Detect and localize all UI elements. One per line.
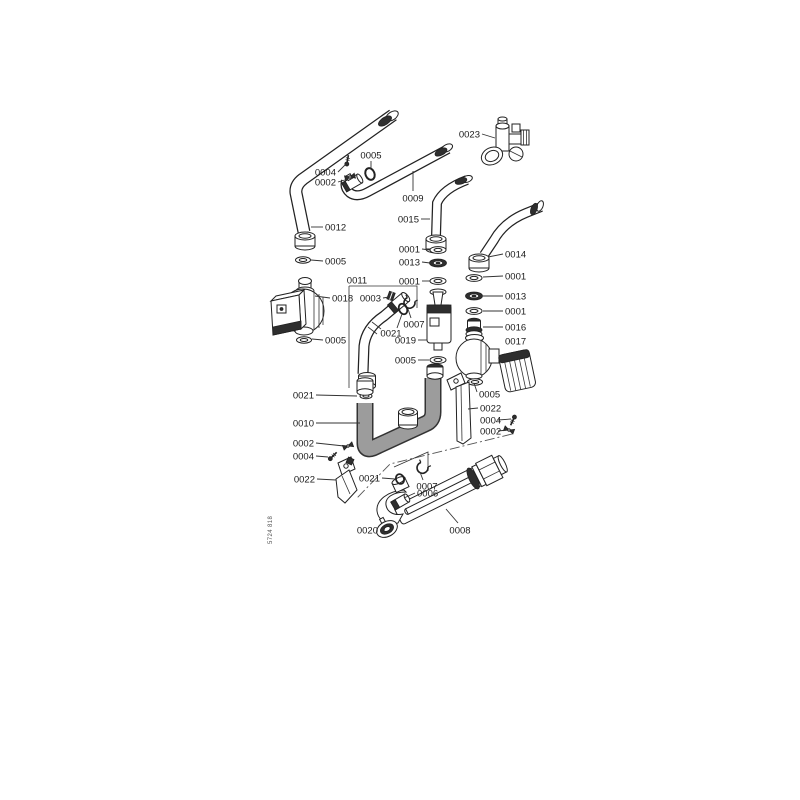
part-label-0005: 0005 [325,256,346,267]
diagram-page: 0023000500040002001200090015001400010013… [0,0,800,800]
washer-0001-a [430,247,446,254]
part-label-0003: 0003 [360,293,381,304]
parts-diagram: 0023000500040002001200090015001400010013… [0,0,800,800]
washer-0001-c [466,275,482,282]
document-number: 5724 818 [268,516,274,544]
part-label-0001: 0001 [505,271,526,282]
part-label-0020: 0020 [357,525,378,536]
part-label-0011: 0011 [347,275,367,286]
gasket-0005-b [297,337,312,343]
part-label-0002: 0002 [293,438,314,449]
part-label-0015: 0015 [398,214,419,225]
part-label-0007: 0007 [403,319,424,330]
part-label-0009: 0009 [402,193,423,204]
part-label-0013: 0013 [399,257,420,268]
page-background [0,0,800,800]
washer-0013-b [466,292,483,300]
part-label-0021: 0021 [359,473,380,484]
washer-0001-b [430,278,446,285]
part-label-0021: 0021 [293,390,314,401]
part-label-0002: 0002 [480,426,501,437]
washer-0005-mid [430,357,446,364]
part-label-0012: 0012 [325,222,346,233]
part-label-0005: 0005 [395,355,416,366]
part-label-0023: 0023 [459,129,480,140]
part-label-0013: 0013 [505,291,526,302]
part-label-0014: 0014 [505,249,526,260]
part-label-0010: 0010 [293,418,314,429]
part-label-0004: 0004 [480,415,501,426]
washer-0001-d [466,308,482,315]
part-label-0005: 0005 [479,389,500,400]
part-label-0019: 0019 [395,335,416,346]
part-label-0017: 0017 [505,336,526,347]
part-label-0022: 0022 [480,403,501,414]
part-label-0005: 0005 [360,150,381,161]
part-label-0018: 0018 [332,293,353,304]
part-label-0022: 0022 [294,474,315,485]
part-label-0001: 0001 [505,306,526,317]
gasket-0005-right [468,379,483,385]
gasket-0005-a [296,257,311,263]
part-label-0005: 0005 [325,335,346,346]
part-label-0006: 0006 [417,488,438,499]
part-label-0016: 0016 [505,322,526,333]
part-label-0008: 0008 [449,525,470,536]
part-label-0001: 0001 [399,244,420,255]
washer-0013-a [430,259,447,267]
part-label-0002: 0002 [315,177,336,188]
part-label-0004: 0004 [293,451,314,462]
part-label-0001: 0001 [399,276,420,287]
